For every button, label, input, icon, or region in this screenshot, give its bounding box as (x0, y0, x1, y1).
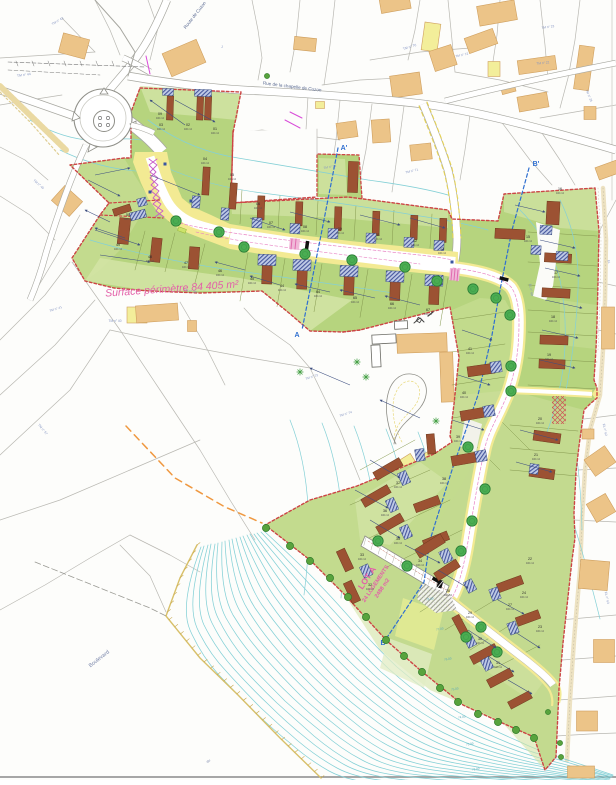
svg-text:400 m2: 400 m2 (336, 232, 345, 235)
svg-text:27: 27 (508, 603, 512, 607)
svg-text:06: 06 (256, 202, 260, 206)
svg-text:08: 08 (303, 225, 307, 229)
svg-text:33: 33 (360, 553, 364, 557)
svg-text:400 m2: 400 m2 (254, 207, 263, 210)
svg-text:400 m2: 400 m2 (556, 192, 565, 195)
svg-text:400 m2: 400 m2 (366, 588, 375, 591)
svg-text:32: 32 (368, 583, 372, 587)
svg-text:400 m2: 400 m2 (184, 128, 193, 131)
svg-text:400 m2: 400 m2 (358, 558, 367, 561)
svg-text:67: 67 (426, 308, 430, 312)
svg-text:400 m2: 400 m2 (549, 320, 558, 323)
svg-text:40: 40 (462, 391, 466, 395)
svg-text:19: 19 (547, 353, 551, 357)
svg-text:400 m2: 400 m2 (494, 666, 503, 669)
svg-text:64: 64 (316, 290, 320, 294)
svg-text:20: 20 (538, 417, 542, 421)
svg-text:400 m2: 400 m2 (351, 301, 360, 304)
svg-text:400 m2: 400 m2 (278, 289, 287, 292)
svg-text:400 m2: 400 m2 (532, 458, 541, 461)
svg-text:400 m2: 400 m2 (216, 274, 225, 277)
svg-text:34: 34 (418, 559, 422, 563)
svg-text:400 m2: 400 m2 (156, 117, 165, 120)
svg-text:400 m2: 400 m2 (248, 282, 257, 285)
svg-text:37: 37 (396, 481, 400, 485)
svg-text:400 m2: 400 m2 (314, 295, 323, 298)
svg-text:04: 04 (203, 157, 207, 161)
svg-text:45: 45 (250, 277, 254, 281)
svg-text:23: 23 (538, 625, 542, 629)
svg-text:400 m2: 400 m2 (536, 630, 545, 633)
svg-text:65: 65 (353, 296, 357, 300)
svg-text:400 m2: 400 m2 (476, 642, 485, 645)
svg-text:39: 39 (456, 435, 460, 439)
svg-text:J: J (221, 45, 223, 49)
svg-text:38: 38 (442, 477, 446, 481)
svg-text:400 m2: 400 m2 (124, 218, 133, 221)
svg-text:01: 01 (213, 127, 217, 131)
svg-text:400 m2: 400 m2 (211, 132, 220, 135)
svg-text:400 m2: 400 m2 (444, 594, 453, 597)
svg-text:48: 48 (148, 255, 152, 259)
svg-text:07: 07 (269, 221, 273, 225)
svg-text:400 m2: 400 m2 (536, 422, 545, 425)
svg-text:400 m2: 400 m2 (466, 352, 475, 355)
svg-text:400 m2: 400 m2 (201, 162, 210, 165)
svg-text:02: 02 (186, 123, 190, 127)
svg-text:400 m2: 400 m2 (424, 313, 433, 316)
svg-text:400 m2: 400 m2 (466, 616, 475, 619)
svg-text:30: 30 (478, 637, 482, 641)
svg-text:18: 18 (551, 315, 555, 319)
svg-text:400 m2: 400 m2 (526, 562, 535, 565)
svg-text:400 m2: 400 m2 (381, 514, 390, 517)
svg-text:66: 66 (390, 302, 394, 306)
svg-text:400 m2: 400 m2 (524, 240, 533, 243)
svg-text:22: 22 (528, 557, 532, 561)
svg-text:400 m2: 400 m2 (454, 440, 463, 443)
svg-text:400 m2: 400 m2 (146, 260, 155, 263)
svg-text:35: 35 (396, 537, 400, 541)
svg-text:400 m2: 400 m2 (114, 248, 123, 251)
svg-text:400 m2: 400 m2 (411, 244, 420, 247)
svg-text:41: 41 (468, 347, 472, 351)
svg-text:03: 03 (159, 123, 163, 127)
svg-text:B': B' (533, 161, 540, 168)
svg-text:400 m2: 400 m2 (506, 608, 515, 611)
svg-text:13: 13 (440, 247, 444, 251)
svg-text:400 m2: 400 m2 (440, 482, 449, 485)
svg-text:11: 11 (376, 233, 380, 237)
svg-text:46: 46 (218, 269, 222, 273)
svg-text:400 m2: 400 m2 (374, 238, 383, 241)
svg-text:TM n° 40: TM n° 40 (109, 319, 122, 323)
svg-text:400 m2: 400 m2 (157, 128, 166, 131)
svg-text:12: 12 (413, 239, 417, 243)
svg-text:16: 16 (558, 187, 562, 191)
svg-text:400 m2: 400 m2 (388, 307, 397, 310)
svg-text:44: 44 (280, 284, 284, 288)
svg-text:400 m2: 400 m2 (228, 178, 237, 181)
svg-text:31: 31 (496, 661, 500, 665)
svg-text:400 m2: 400 m2 (545, 358, 554, 361)
svg-text:400 m2: 400 m2 (301, 230, 310, 233)
svg-text:09: 09 (158, 112, 162, 116)
svg-text:400 m2: 400 m2 (416, 564, 425, 567)
svg-text:15: 15 (526, 235, 530, 239)
svg-text:47: 47 (184, 261, 188, 265)
svg-text:49: 49 (116, 243, 120, 247)
svg-text:36: 36 (383, 509, 387, 513)
svg-text:28: 28 (446, 589, 450, 593)
svg-text:400 m2: 400 m2 (267, 226, 276, 229)
svg-text:400 m2: 400 m2 (182, 266, 191, 269)
svg-text:10: 10 (338, 227, 342, 231)
svg-text:400 m2: 400 m2 (552, 276, 561, 279)
svg-text:05: 05 (230, 173, 234, 177)
svg-text:400 m2: 400 m2 (394, 486, 403, 489)
svg-text:17: 17 (554, 271, 558, 275)
svg-text:50: 50 (126, 213, 130, 217)
svg-text:400 m2: 400 m2 (438, 252, 447, 255)
svg-text:21: 21 (534, 453, 538, 457)
svg-text:400 m2: 400 m2 (460, 396, 469, 399)
svg-text:400 m2: 400 m2 (394, 542, 403, 545)
svg-text:29: 29 (468, 611, 472, 615)
svg-text:A': A' (341, 145, 348, 152)
svg-text:24: 24 (522, 591, 526, 595)
svg-text:A: A (294, 332, 299, 339)
svg-text:400 m2: 400 m2 (520, 596, 529, 599)
